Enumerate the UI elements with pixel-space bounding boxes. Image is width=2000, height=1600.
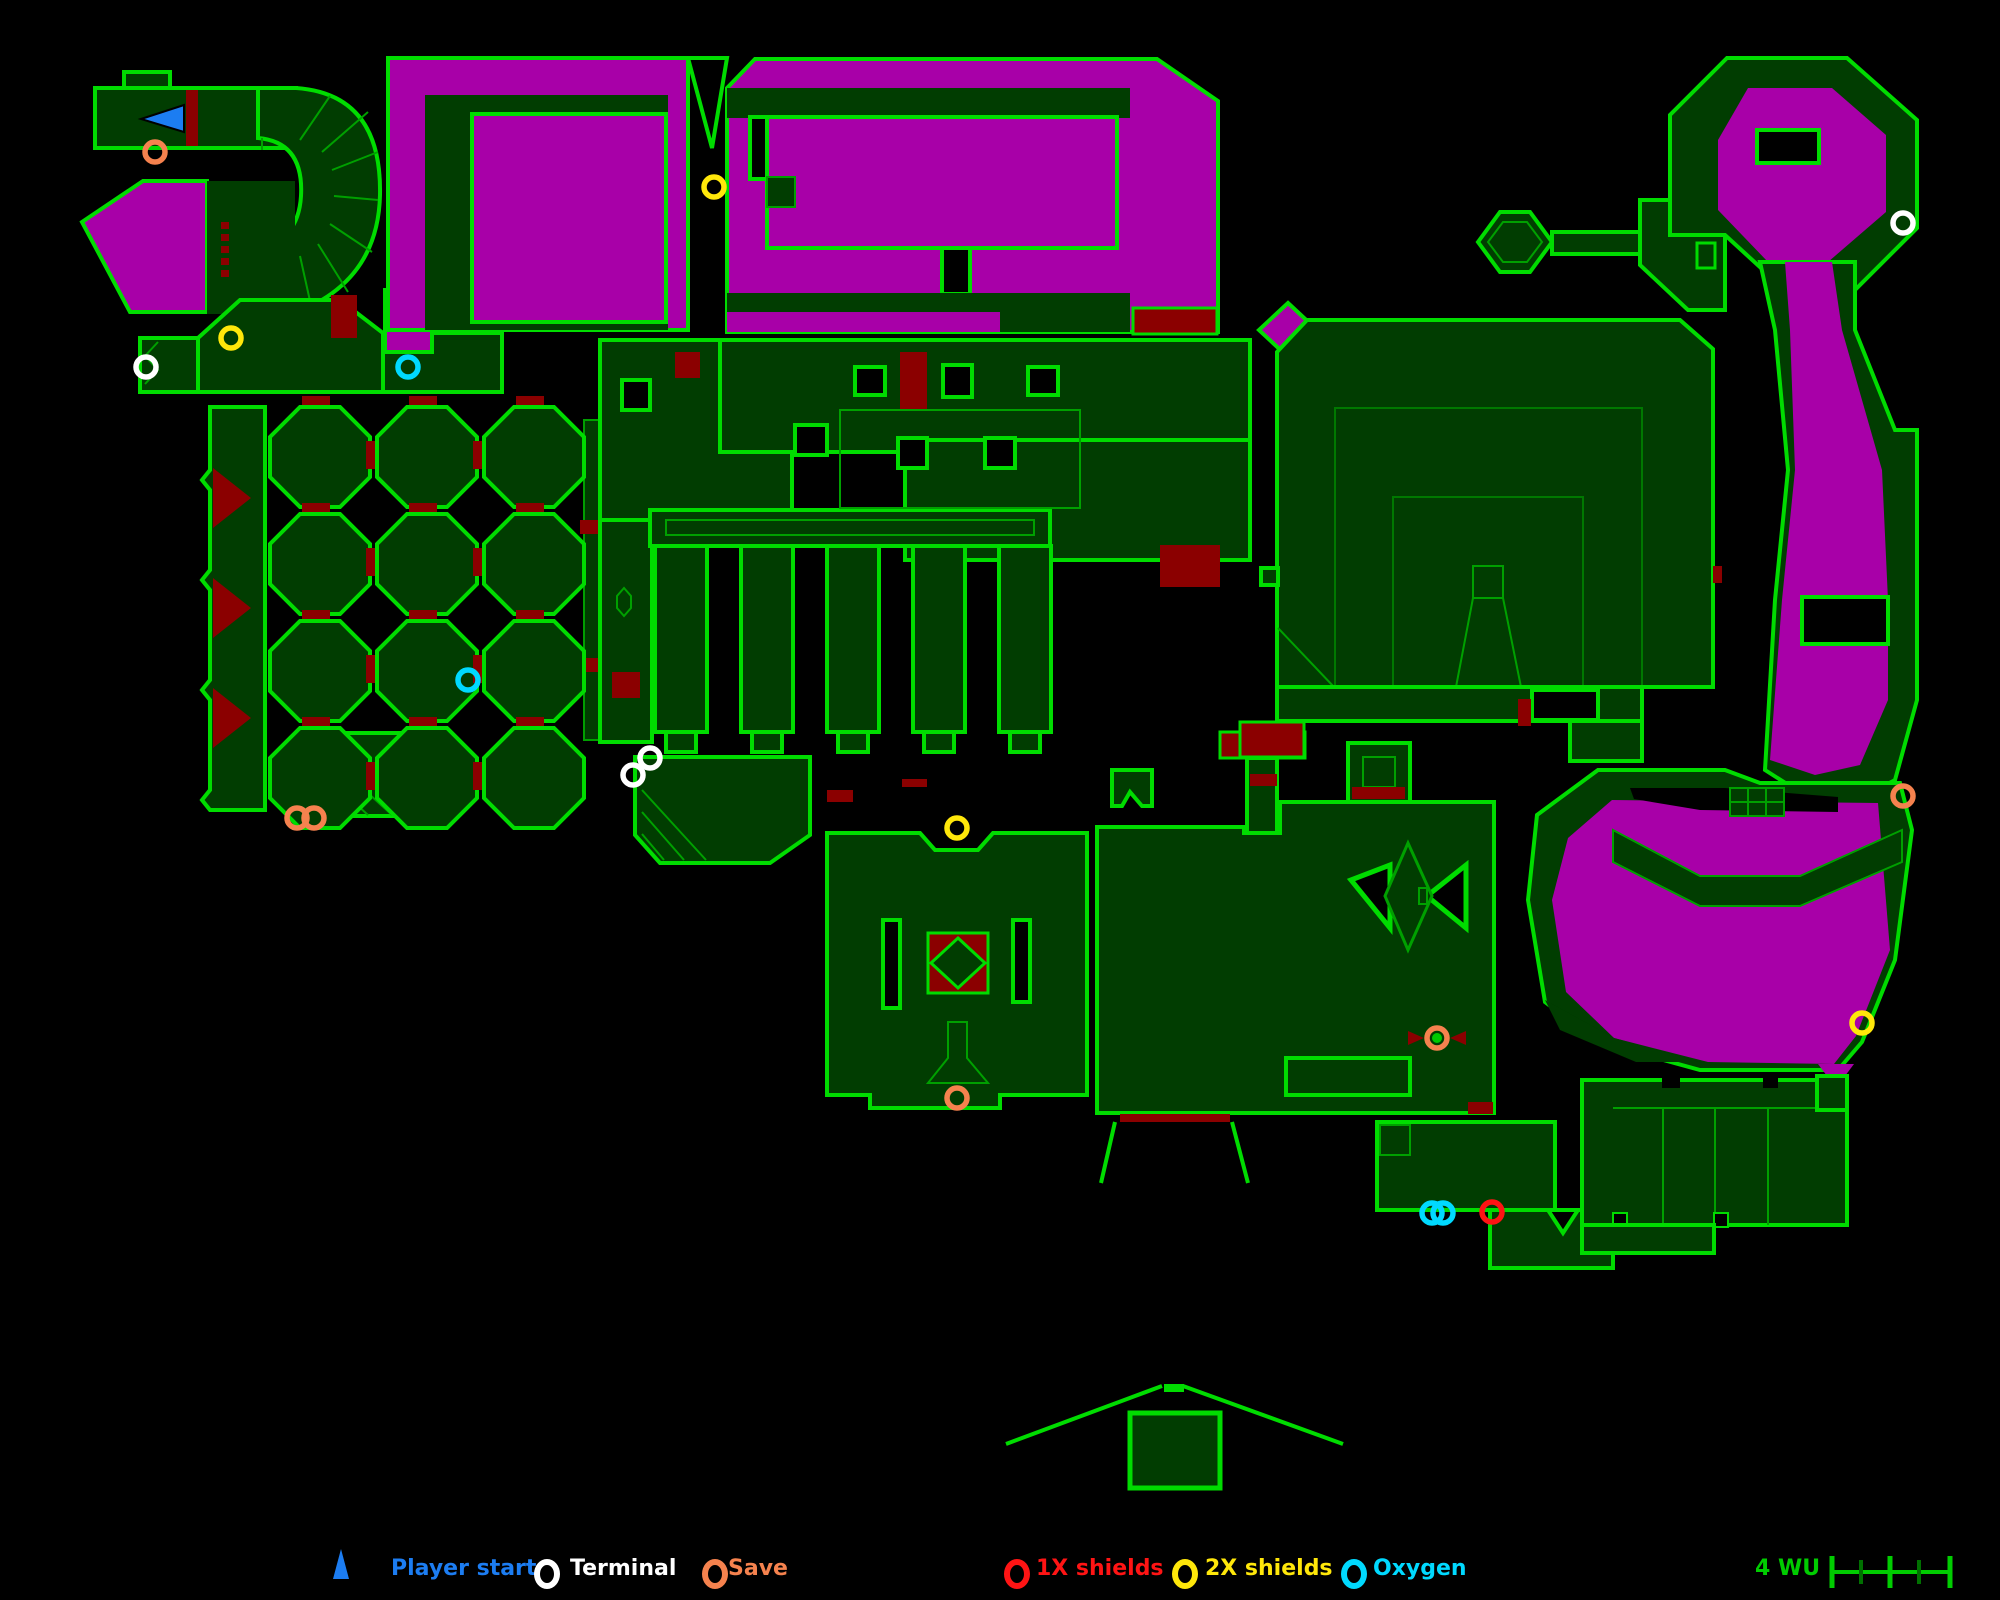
map-geometry bbox=[999, 546, 1051, 732]
map-geometry bbox=[221, 246, 229, 253]
map-geometry bbox=[1468, 1102, 1493, 1114]
map-geometry bbox=[902, 779, 927, 787]
room-diamond bbox=[827, 833, 1087, 1108]
map-geometry bbox=[1352, 787, 1405, 799]
region-arena bbox=[1240, 303, 1722, 761]
map-geometry bbox=[943, 365, 972, 397]
octagon-cell bbox=[377, 407, 477, 507]
comb-teeth bbox=[655, 546, 1051, 752]
region-lake bbox=[1528, 770, 1912, 1088]
octagon-cell bbox=[484, 621, 584, 721]
map-geometry bbox=[140, 338, 198, 392]
oxygen-legend-icon bbox=[1341, 1559, 1367, 1589]
northwest-pool bbox=[82, 181, 207, 312]
marker-2x-shields bbox=[704, 177, 724, 197]
legend-label-1x-shields: 1X shields bbox=[1036, 1556, 1164, 1581]
map-geometry bbox=[1730, 802, 1748, 816]
map-geometry bbox=[1028, 367, 1058, 395]
region-top-center-east bbox=[727, 59, 1218, 334]
map-geometry bbox=[1377, 1122, 1555, 1210]
player-start-legend-icon bbox=[333, 1549, 349, 1579]
map-geometry bbox=[1766, 802, 1784, 816]
v-slot bbox=[688, 58, 727, 148]
map-geometry bbox=[221, 258, 229, 265]
map-geometry bbox=[900, 352, 927, 410]
map-geometry bbox=[1766, 788, 1784, 802]
map-geometry bbox=[1247, 758, 1277, 836]
map-geometry bbox=[612, 672, 640, 698]
octagon-cell bbox=[484, 407, 584, 507]
octagon-cell bbox=[270, 407, 370, 507]
map-geometry bbox=[221, 222, 229, 229]
map-geometry bbox=[1757, 130, 1819, 163]
map-geometry bbox=[985, 438, 1015, 468]
map-geometry bbox=[913, 546, 965, 732]
map-geometry bbox=[1570, 721, 1642, 761]
terminal-legend-icon bbox=[534, 1559, 560, 1589]
map-geometry bbox=[750, 117, 767, 179]
map-geometry bbox=[1277, 320, 1713, 687]
map-geometry bbox=[1133, 308, 1217, 334]
map-geometry bbox=[924, 732, 954, 752]
hut bbox=[1006, 1384, 1343, 1488]
map-canvas bbox=[0, 0, 2000, 1600]
room-plane bbox=[1097, 732, 1494, 1183]
map-geometry bbox=[1714, 1213, 1728, 1227]
map-geometry bbox=[741, 546, 793, 732]
map-geometry bbox=[1748, 788, 1766, 802]
map-geometry bbox=[727, 88, 1130, 118]
octagon-cell bbox=[377, 514, 477, 614]
map-geometry bbox=[727, 312, 1000, 332]
scale-label: 4 WU bbox=[1755, 1556, 1820, 1581]
map-viewer: Player start Terminal Save 1X shields 2X… bbox=[0, 0, 2000, 1600]
map-geometry bbox=[1419, 888, 1427, 904]
octagon-grid bbox=[202, 396, 608, 828]
map-geometry bbox=[655, 546, 707, 732]
cell-grid bbox=[1730, 788, 1784, 816]
map-geometry bbox=[221, 234, 229, 241]
map-geometry bbox=[1101, 1122, 1248, 1183]
legend-label-oxygen: Oxygen bbox=[1373, 1556, 1467, 1581]
map-geometry bbox=[1286, 1058, 1410, 1095]
octagon-cell bbox=[484, 514, 584, 614]
map-geometry bbox=[1112, 770, 1152, 806]
octagon-cell bbox=[377, 728, 477, 828]
map-geometry bbox=[650, 510, 1050, 546]
hut-room bbox=[1130, 1413, 1220, 1488]
map-geometry bbox=[221, 270, 229, 277]
map-geometry bbox=[1532, 690, 1598, 720]
map-geometry bbox=[1817, 1076, 1847, 1110]
map-geometry bbox=[1164, 1384, 1184, 1392]
map-geometry bbox=[1552, 800, 1890, 1064]
map-geometry bbox=[1730, 788, 1748, 802]
map-geometry bbox=[207, 181, 295, 314]
octagon-cell bbox=[270, 514, 370, 614]
map-geometry bbox=[1010, 732, 1040, 752]
legend-label-terminal: Terminal bbox=[570, 1556, 676, 1581]
scale-ruler bbox=[1828, 1552, 1958, 1592]
octagon-cell bbox=[484, 728, 584, 828]
map-geometry bbox=[1120, 1114, 1230, 1122]
map-geometry bbox=[1713, 566, 1722, 583]
map-geometry bbox=[1250, 774, 1277, 786]
map-geometry bbox=[795, 425, 827, 455]
map-geometry bbox=[898, 438, 927, 468]
map-geometry bbox=[331, 295, 357, 338]
region-southeast-rooms bbox=[1286, 1058, 1847, 1268]
map-geometry bbox=[186, 90, 198, 146]
marker-save-dot bbox=[1432, 1033, 1442, 1043]
map-geometry bbox=[1518, 699, 1531, 726]
region-top-center-west bbox=[388, 58, 727, 330]
map-geometry bbox=[855, 367, 885, 395]
map-geometry bbox=[1582, 1225, 1714, 1253]
map-geometry bbox=[827, 790, 853, 802]
map-geometry bbox=[767, 177, 795, 207]
map-geometry bbox=[1261, 568, 1278, 585]
marker-2x-shields bbox=[947, 818, 967, 838]
map-geometry bbox=[752, 732, 782, 752]
map-geometry bbox=[1748, 802, 1766, 816]
map-geometry bbox=[942, 248, 970, 294]
legend-label-player-start: Player start bbox=[391, 1556, 536, 1581]
map-geometry bbox=[675, 352, 700, 378]
map-geometry bbox=[472, 114, 666, 322]
map-geometry bbox=[1662, 1076, 1680, 1088]
1x-shields-legend-icon bbox=[1004, 1559, 1030, 1589]
map-geometry bbox=[666, 732, 696, 752]
legend-label-save: Save bbox=[728, 1556, 788, 1581]
map-geometry bbox=[883, 920, 900, 1008]
map-geometry bbox=[827, 546, 879, 732]
octagon-cell bbox=[270, 621, 370, 721]
map-geometry bbox=[1802, 597, 1888, 644]
map-geometry bbox=[1240, 722, 1304, 757]
save-legend-icon bbox=[702, 1559, 728, 1589]
map-geometry bbox=[1013, 920, 1030, 1002]
map-geometry bbox=[1697, 243, 1715, 268]
map-geometry bbox=[1160, 545, 1220, 587]
legend-label-2x-shields: 2X shields bbox=[1205, 1556, 1333, 1581]
2x-shields-legend-icon bbox=[1172, 1559, 1198, 1589]
map-geometry bbox=[1763, 1076, 1778, 1088]
map-geometry bbox=[622, 380, 650, 410]
map-geometry bbox=[838, 732, 868, 752]
map-geometry bbox=[767, 117, 1117, 248]
